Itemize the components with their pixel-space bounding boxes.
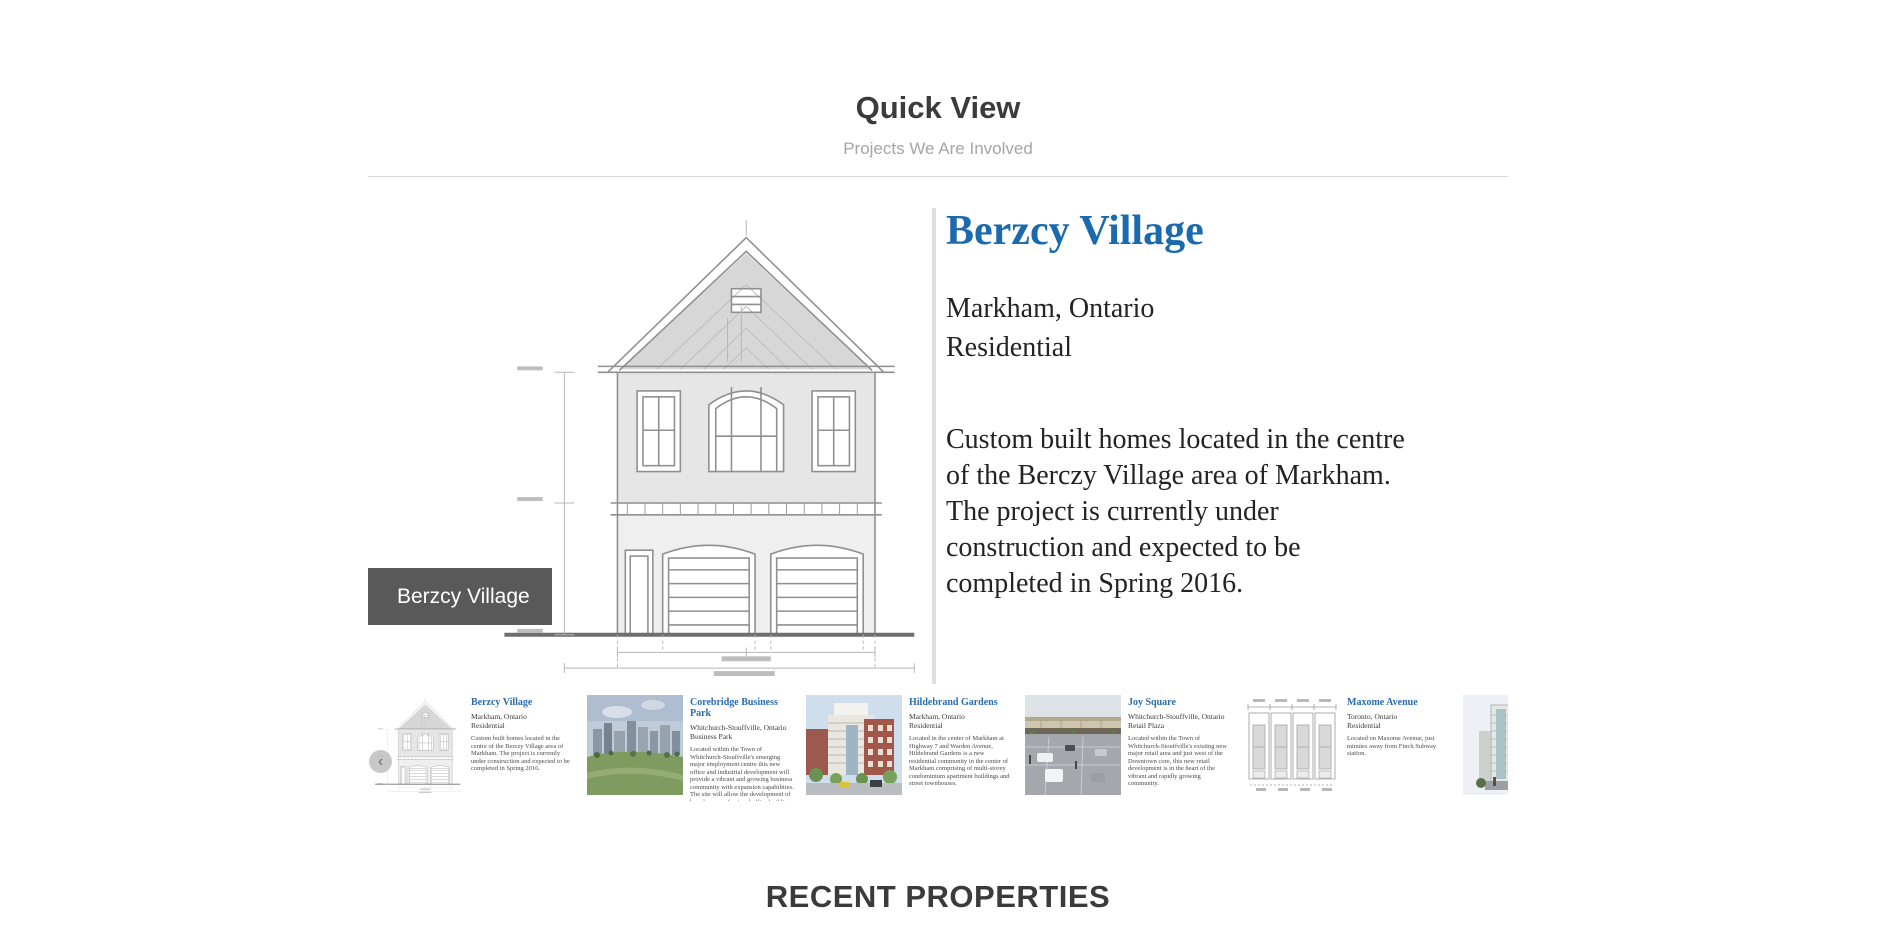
featured-project-location: Markham, Ontario <box>946 292 1420 325</box>
card-text: Joy Square Whitchurch-Stouffville, Ontar… <box>1128 695 1232 801</box>
divider <box>368 176 1508 177</box>
townhouse-blueprint-thumbnail-image <box>1244 695 1340 795</box>
house-blueprint-thumbnail-image <box>368 695 464 795</box>
midrise-building-rendering-image <box>806 695 902 795</box>
card-type: Business Park <box>690 733 794 742</box>
carousel-card-maxome-avenue[interactable]: Maxome Avenue Toronto, Ontario Residenti… <box>1244 695 1452 801</box>
project-carousel: Berzcy Village Markham, Ontario Resident… <box>368 695 1508 801</box>
card-title: Joy Square <box>1128 697 1232 708</box>
featured-project-title: Berzcy Village <box>946 208 1420 254</box>
card-title: Hildebrand Gardens <box>909 697 1013 708</box>
featured-project-type: Residential <box>946 331 1420 364</box>
chevron-left-icon: ‹ <box>378 754 383 770</box>
carousel-card-joy-square[interactable]: Joy Square Whitchurch-Stouffville, Ontar… <box>1025 695 1233 801</box>
card-title: Berzcy Village <box>471 697 575 708</box>
card-text: Hildebrand Gardens Markham, Ontario Resi… <box>909 695 1013 801</box>
carousel-card-corebridge-business-park[interactable]: Corebridge Business Park Whitchurch-Stou… <box>587 695 795 801</box>
card-text: Berzcy Village Markham, Ontario Resident… <box>471 695 575 801</box>
page: Quick View Projects We Are Involved Berz… <box>0 0 1892 926</box>
card-description: Located within the Town of Whitchurch-St… <box>1128 735 1232 788</box>
card-title: Maxome Avenue <box>1347 697 1451 708</box>
card-description: Located on Maxome Avenue, just minutes a… <box>1347 735 1451 758</box>
card-text: Corebridge Business Park Whitchurch-Stou… <box>690 695 794 801</box>
card-title: Corebridge Business Park <box>690 697 794 719</box>
quick-view-section: Quick View Projects We Are Involved Berz… <box>368 0 1508 926</box>
carousel-prev-button[interactable]: ‹ <box>369 750 392 773</box>
card-type: Retail Plaza <box>1128 722 1232 731</box>
retail-plaza-rendering-image <box>1025 695 1121 795</box>
carousel-track: Berzcy Village Markham, Ontario Resident… <box>368 695 1508 801</box>
carousel-card-hildebrand-gardens[interactable]: Hildebrand Gardens Markham, Ontario Resi… <box>806 695 1014 801</box>
condo-tower-rendering-image <box>1463 695 1508 795</box>
featured-project-slide[interactable]: Berzcy Village Markham, Ontario Resident… <box>470 208 1410 684</box>
page-title: Quick View <box>368 90 1508 126</box>
card-type: Residential <box>471 722 575 731</box>
business-park-rendering-image <box>587 695 683 795</box>
featured-badge: Berzcy Village <box>368 568 552 625</box>
card-description: Custom built homes located in the centre… <box>471 735 575 773</box>
recent-properties-heading: RECENT PROPERTIES <box>368 879 1508 915</box>
card-description: Located within the Town of Whitchurch-St… <box>690 746 794 801</box>
featured-text: Berzcy Village Markham, Ontario Resident… <box>936 208 1420 684</box>
carousel-card-berzcy-village[interactable]: Berzcy Village Markham, Ontario Resident… <box>368 695 576 801</box>
card-type: Residential <box>1347 722 1451 731</box>
carousel-card-next-partial[interactable] <box>1463 695 1508 801</box>
featured-project-description: Custom built homes located in the centre… <box>946 422 1420 602</box>
card-description: Located in the center of Markham at High… <box>909 735 1013 788</box>
card-text: Maxome Avenue Toronto, Ontario Residenti… <box>1347 695 1451 801</box>
card-type: Residential <box>909 722 1013 731</box>
page-subtitle: Projects We Are Involved <box>368 139 1508 159</box>
